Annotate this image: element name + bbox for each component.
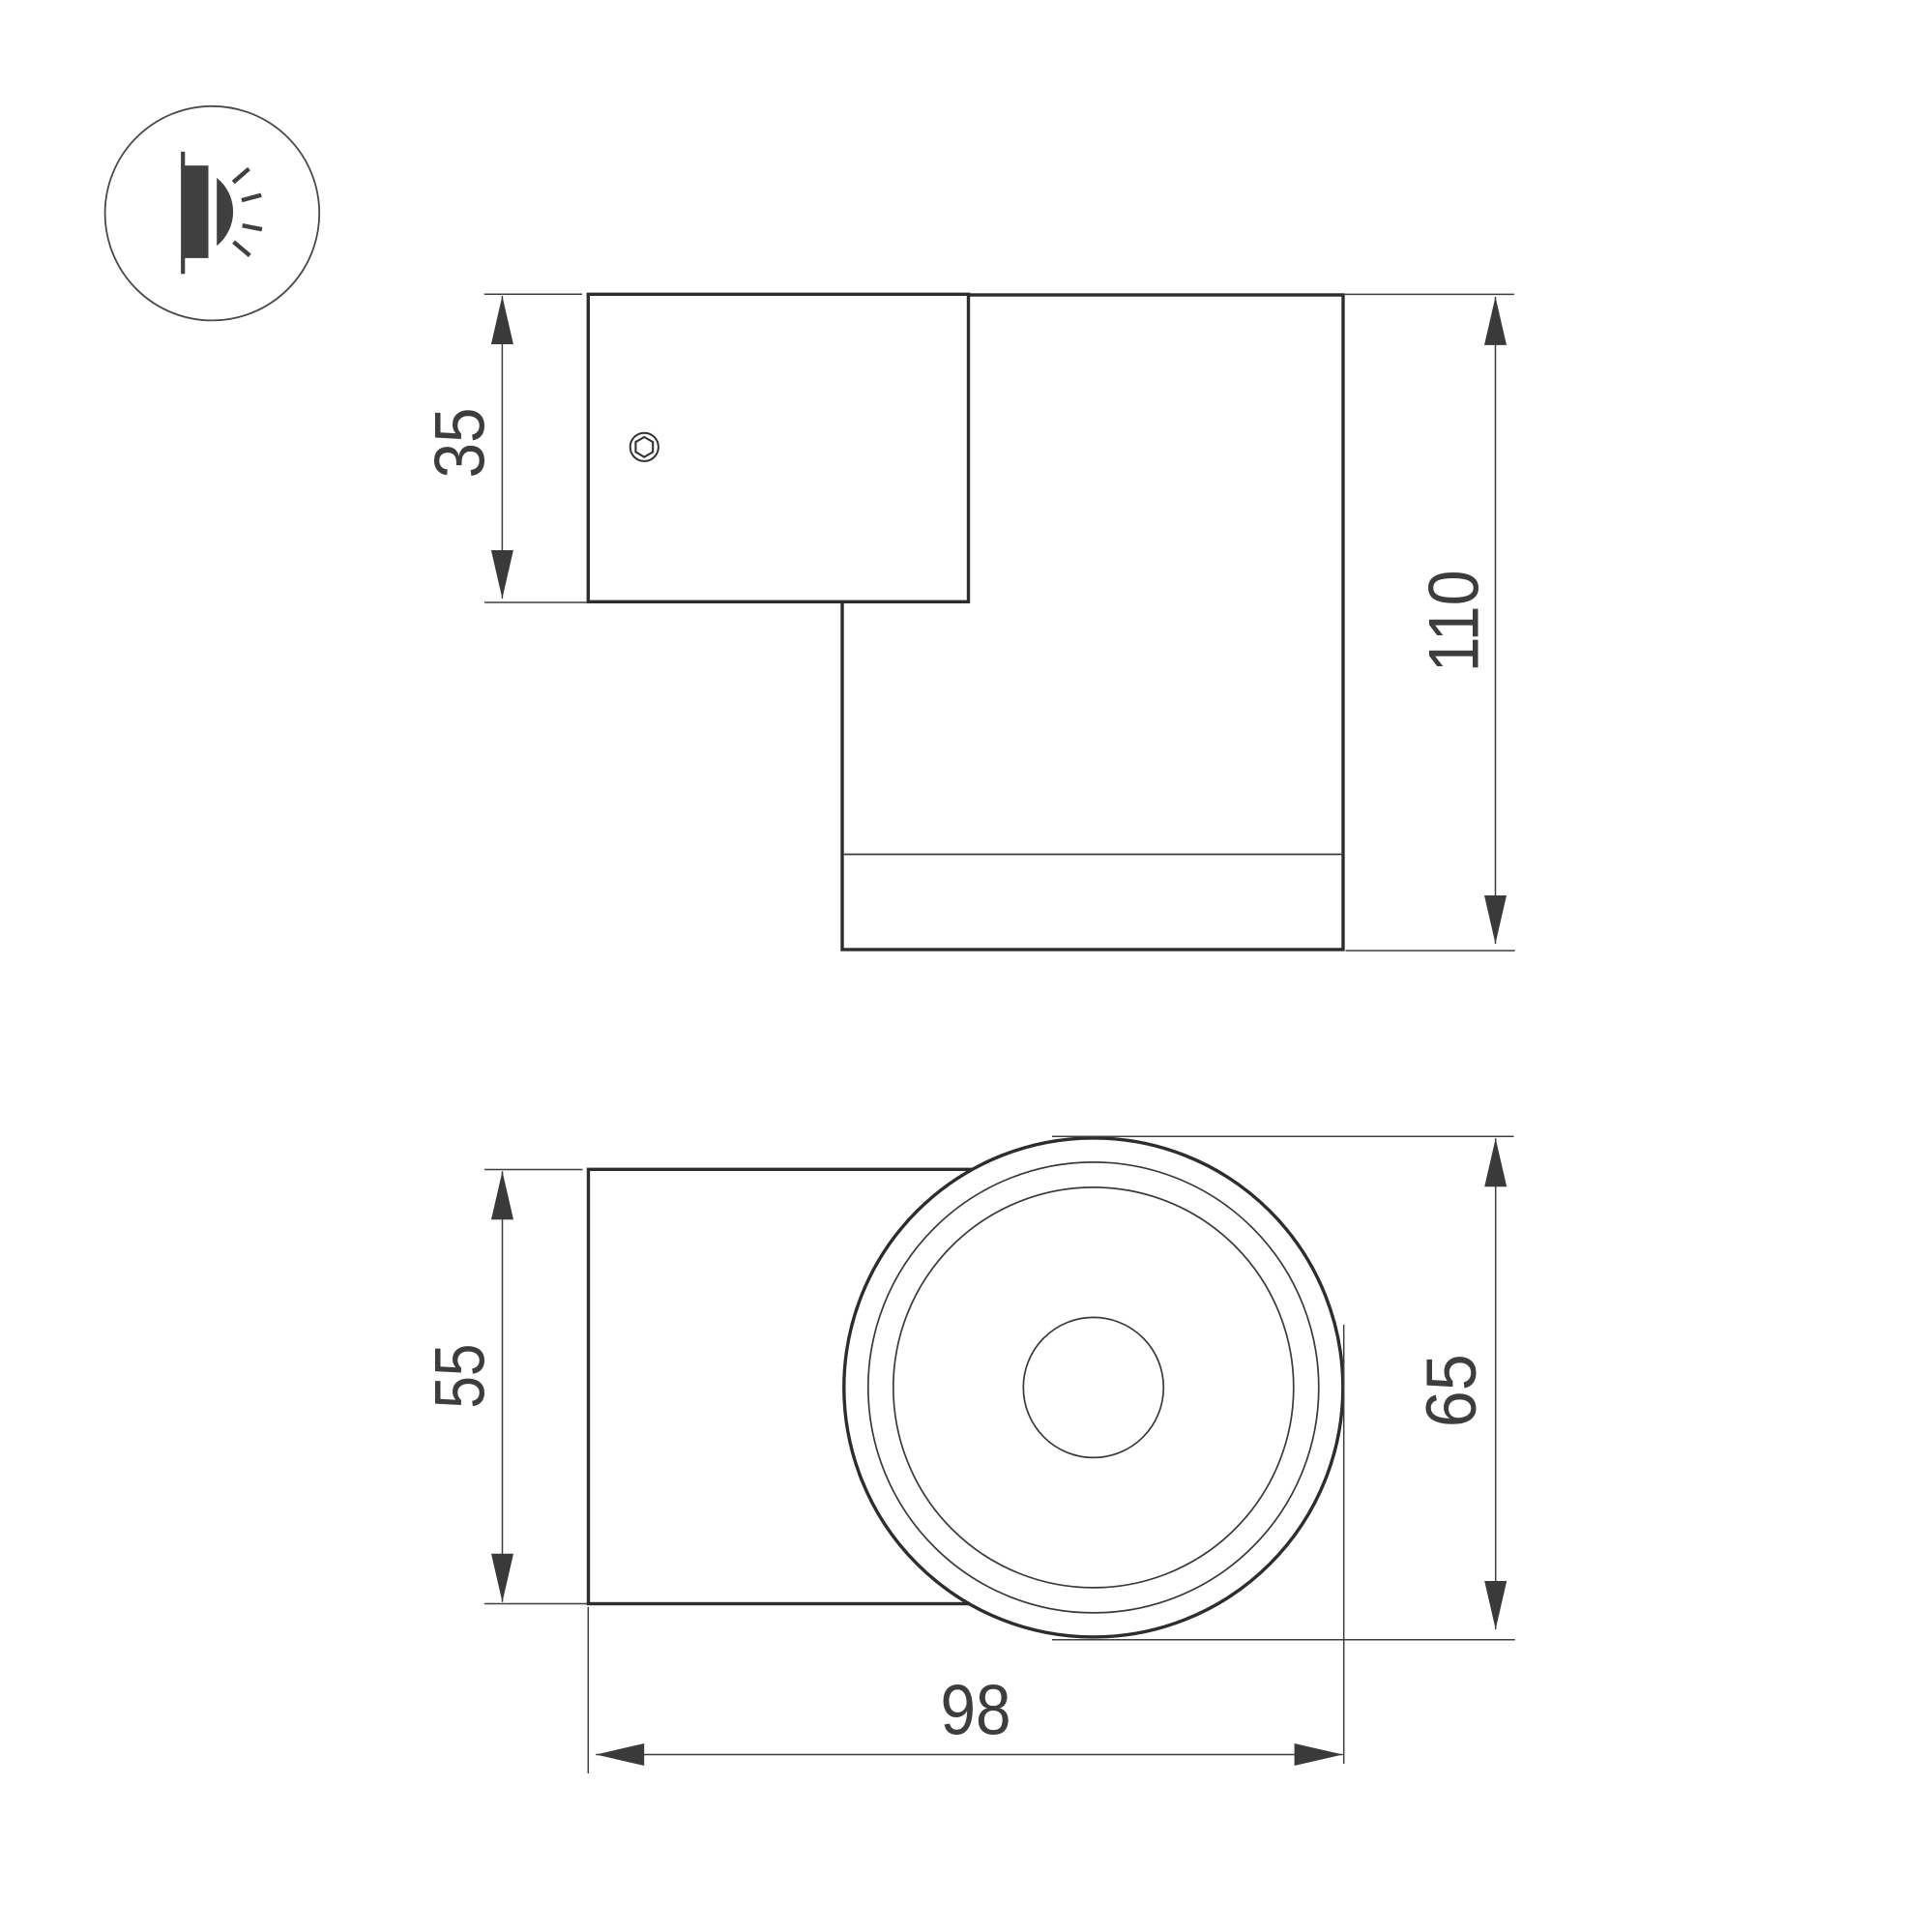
svg-text:110: 110 <box>1416 570 1494 672</box>
svg-text:35: 35 <box>422 408 500 479</box>
svg-text:65: 65 <box>1413 1354 1491 1427</box>
svg-text:98: 98 <box>941 1672 1011 1750</box>
svg-text:55: 55 <box>422 1344 500 1409</box>
